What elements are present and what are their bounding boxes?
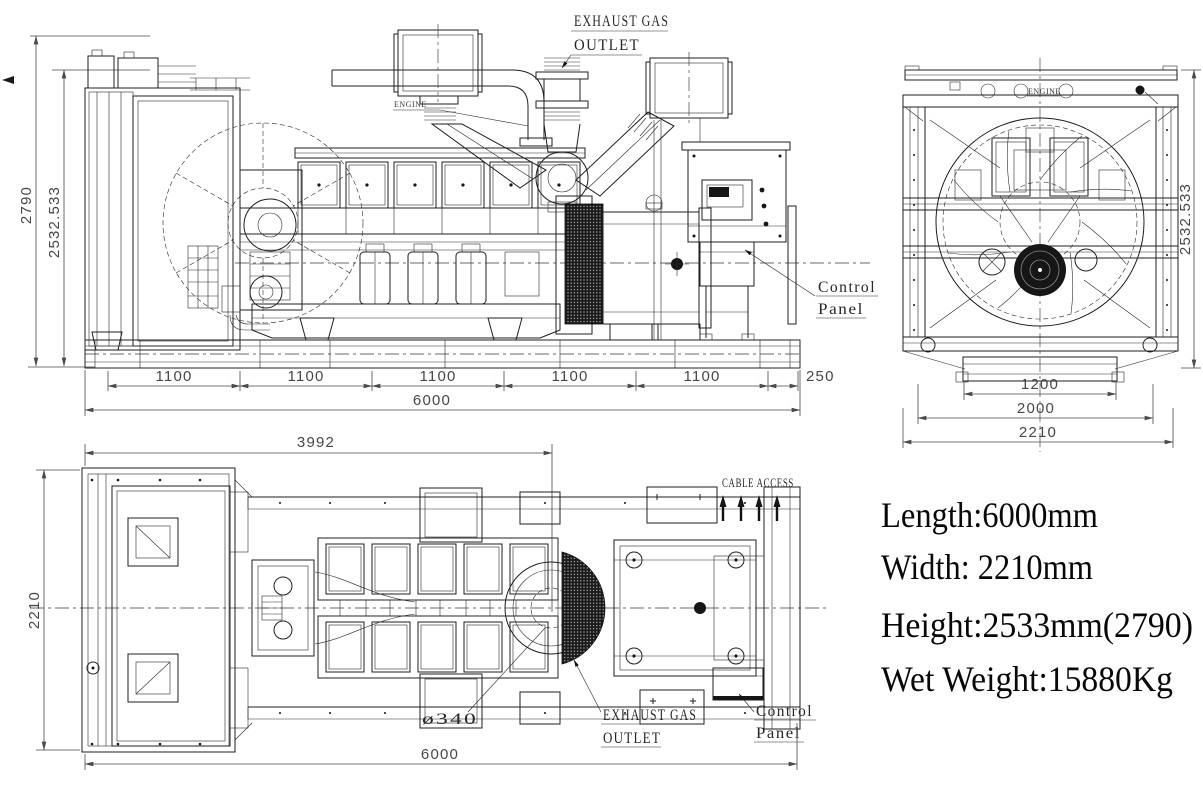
base-frame-side — [85, 340, 800, 368]
dim-1100-1: 1100 — [155, 368, 192, 385]
spec-weight: Wet Weight:15880Kg — [881, 659, 1173, 699]
dim-1100-5: 1100 — [683, 368, 720, 385]
outlet-label-top: OUTLET — [574, 37, 640, 54]
dim-height-overall: 2790 — [18, 186, 35, 224]
dim-2000: 2000 — [1017, 400, 1055, 417]
dim-height-end: 2532.533 — [1177, 183, 1194, 255]
dim-1200: 1200 — [1021, 376, 1059, 393]
spec-length: Length:6000mm — [881, 495, 1098, 535]
dim-1100-3: 1100 — [419, 368, 456, 385]
exhaust-outlet-callout-top: EXHAUST GAS OUTLET — [562, 13, 669, 68]
panel-label-plan: Panel — [756, 725, 801, 742]
panel-label-side: Panel — [818, 301, 864, 318]
dim-6000-plan: 6000 — [421, 746, 459, 763]
outlet-diameter-label: ø340 — [422, 711, 478, 728]
control-label-side: Control — [818, 279, 876, 296]
exhaust-gas-label-top: EXHAUST GAS — [574, 13, 669, 30]
cable-access-label: CABLE ACCESS — [722, 476, 794, 490]
end-frame: ENGINE — [903, 66, 1178, 337]
drawing-canvas: 2790 2532.533 — [0, 0, 1203, 786]
plan-callouts-bottom: ø340 EXHAUST GAS OUTLET Control Panel — [422, 628, 816, 747]
spec-width: Width: 2210mm — [881, 547, 1093, 587]
control-display-screen — [709, 187, 729, 197]
radiator-plan — [82, 468, 252, 752]
dim-6000-side: 6000 — [413, 392, 451, 409]
side-dimensions-left: 2790 2532.533 — [2, 36, 150, 367]
control-display-bezel — [702, 180, 752, 220]
side-view: 2790 2532.533 — [2, 13, 878, 416]
dim-2210-end: 2210 — [1019, 424, 1057, 441]
dim-2210-plan: 2210 — [26, 591, 43, 629]
side-dimensions-bottom: 1100 1100 1100 1100 1100 250 6000 — [85, 368, 835, 416]
control-label-plan: Control — [756, 703, 813, 720]
cable-access-callout: CABLE ACCESS — [720, 476, 795, 521]
exhaust-gas-label-plan: EXHAUST GAS — [603, 707, 697, 724]
radiator-side — [85, 50, 363, 350]
dim-1100-2: 1100 — [287, 368, 324, 385]
spec-block: Length:6000mm Width: 2210mm Height:2533m… — [881, 495, 1193, 699]
end-view: ENGINE 1200 2000 — [903, 58, 1201, 452]
dim-1100-4: 1100 — [551, 368, 588, 385]
spec-height: Height:2533mm(2790) — [881, 605, 1193, 645]
alternator-grille-side — [565, 204, 603, 324]
break-mark — [2, 76, 14, 84]
plan-view: 3992 2210 — [26, 434, 828, 770]
engine-side: ENGINE — [235, 100, 870, 340]
plan-dimensions-top: 3992 2210 — [26, 434, 552, 750]
dim-250: 250 — [806, 368, 835, 385]
alternator-grille-plan — [562, 552, 605, 664]
outlet-label-plan: OUTLET — [603, 730, 661, 747]
dim-3992: 3992 — [297, 434, 335, 451]
dim-height-canopy: 2532.533 — [46, 186, 63, 258]
generator-set-drawing: 2790 2532.533 — [0, 0, 1203, 786]
